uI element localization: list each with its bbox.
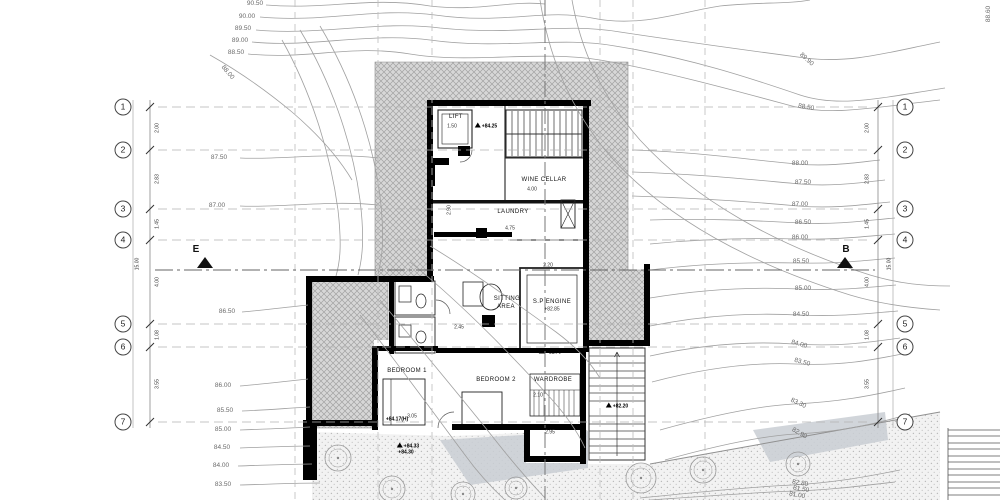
column <box>476 228 487 238</box>
external-stair-right <box>589 348 645 460</box>
column <box>482 315 495 327</box>
plan-canvas <box>0 0 1000 500</box>
floor-plan-drawing: E B 1234567123456790.5090.0089.5089.0088… <box>0 0 1000 500</box>
section-marker-e-triangle <box>197 257 213 268</box>
column <box>458 146 470 156</box>
garden-stair-bottom-right <box>948 428 1000 500</box>
